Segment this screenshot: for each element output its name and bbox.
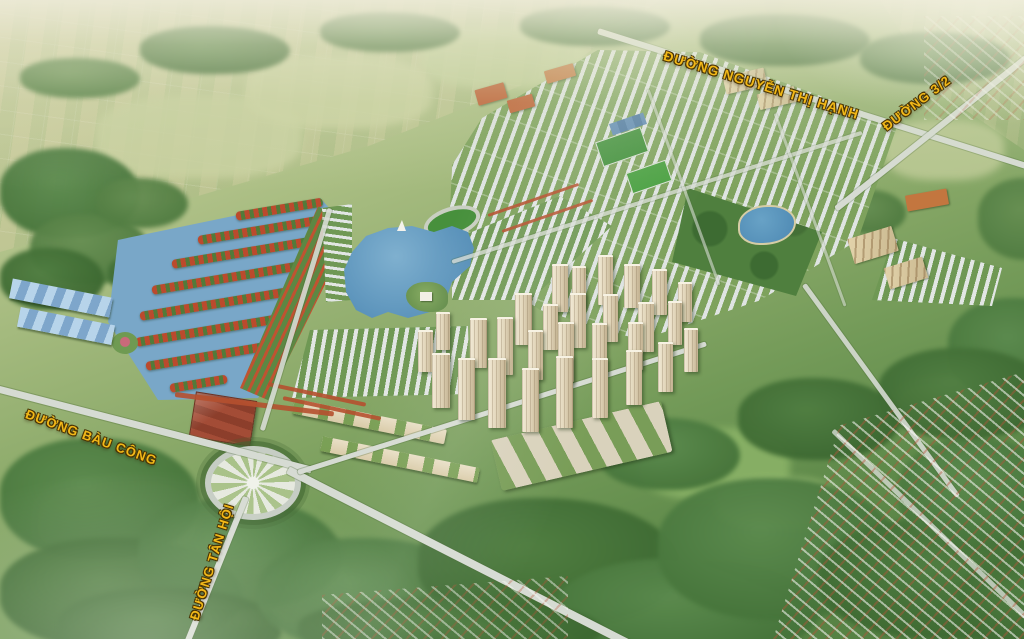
highrise-tower — [658, 342, 673, 392]
highrise-tower — [626, 350, 642, 405]
highrise-tower — [652, 269, 667, 315]
highrise-tower — [684, 328, 698, 372]
highrise-tower — [668, 301, 682, 345]
highrise-tower — [432, 353, 450, 408]
highrise-tower — [543, 304, 558, 350]
highrise-tower — [592, 358, 608, 418]
highrise-tower — [458, 358, 475, 420]
highrise-tower — [522, 368, 539, 432]
highrise-tower — [556, 356, 573, 428]
highrise-tower — [488, 358, 506, 428]
aerial-masterplan-render: ĐƯỜNG NGUYỄN THỊ HẠNH ĐƯỜNG 3/2 ĐƯỜNG BÀ… — [0, 0, 1024, 639]
highrise-tower — [436, 312, 450, 350]
highrise-tower — [418, 330, 433, 372]
